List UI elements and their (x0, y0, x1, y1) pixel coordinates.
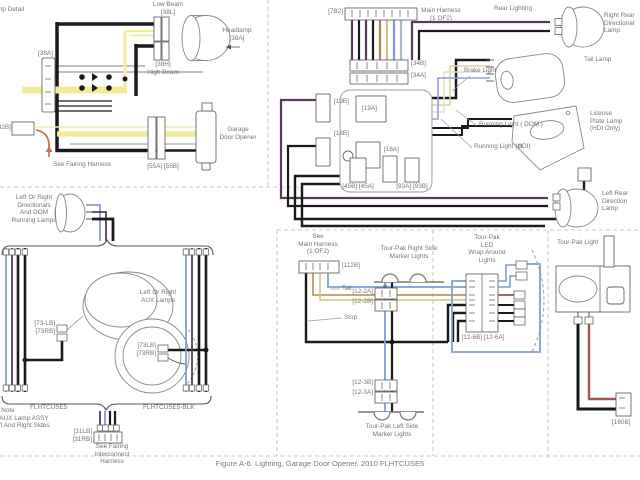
garage-door-opener-label: Garage Door Opener (220, 126, 257, 141)
connector-32b-label: [32B] (0, 124, 11, 132)
tourpak-light-title: Tour-Pak Light (557, 239, 598, 247)
tourpak-light-wires (578, 324, 631, 416)
see-fairing-interconnect-label: See Fairing Interconnect Harness (94, 443, 129, 466)
rear-panel-leader-lines (441, 76, 477, 148)
led-connector (466, 274, 498, 332)
headlamp-label: Headlamp [38A] (222, 27, 251, 42)
left-rear-directional-lamp-drawing (553, 189, 598, 227)
left-marker-lights-drawing (358, 412, 424, 420)
brake-light-label: Brake Light (464, 67, 496, 75)
main-harness-label: Main Harness (1 OF2) (421, 7, 460, 22)
wiring-diagram-page: Lamp Detail Low Beam [38L] Headlamp [38A… (0, 0, 640, 480)
connector-12-6-label: [12-6B] [12-6A] (462, 334, 505, 342)
main-harness-connector (299, 261, 339, 273)
connector-38a-label: [38A] (38, 50, 53, 58)
connector-12-3a-label: [12-3A] (352, 389, 373, 397)
brace-top (2, 240, 213, 255)
connector-18a-label: [18A] (384, 146, 399, 154)
see-main-harness-label: See Main Harness (1 OF2) (298, 233, 337, 256)
connector-12-2a-label: [12-2A] (352, 288, 373, 296)
headlamp-panel-title: Lamp Detail (0, 6, 24, 14)
connector-160b-label: [160B] (612, 419, 630, 427)
tail-lamp-label: Tail Lamp (584, 56, 611, 64)
see-fairing-harness-label: See Fairing Harness (53, 161, 111, 169)
connector-34a-label: [34A] (411, 72, 426, 80)
high-beam-label: [38H] High Beam (147, 61, 179, 76)
right-markers-label: Tour-Pak Right Side Marker Lights (381, 245, 438, 260)
right-rear-directional-label: Right Rear Directional Lamp (604, 12, 635, 35)
led-wrap-around-label: Tour-Pak LED Wrap Around Lights (468, 234, 505, 265)
directional-lamp-wires (86, 205, 113, 241)
connector-73-left-label: [73-LB] [73RB] (34, 320, 55, 335)
connector-19a-label: [19A] (362, 105, 377, 113)
tail-lamp-drawing (486, 51, 567, 104)
connector-18b-label: [18B] (334, 130, 349, 138)
rear-lighting-title: Rear Lighting (494, 5, 532, 13)
connector-19b-label: [19B] (334, 98, 349, 106)
running-light-hdi-label: Running Light (HDI) (474, 143, 530, 151)
connector-73-right-label: [73LB] [73RB] (136, 342, 156, 357)
left-rear-directional-label: Left Rear Direction Lamp (602, 190, 628, 213)
note-label: Note Directional/AUX Lamp ASSY On Both L… (0, 407, 50, 430)
connector-112b-label: [112B] (342, 262, 360, 270)
connector-12-3b-label: [12-3B] (352, 379, 373, 387)
connector-12-2b-label: [12-2B] (352, 298, 373, 306)
connector-7b2-label: [7B2] (328, 8, 343, 16)
tail-wire-label: Tail (342, 285, 352, 293)
aux-lamps-label: Left Or Right AUX Lamps (140, 289, 176, 304)
connector-93-label: [93A] [93B] (396, 183, 428, 191)
right-marker-lights-drawing (374, 274, 444, 282)
low-beam-label: Low Beam [38L] (153, 1, 183, 16)
rear-panel-bundle (352, 20, 401, 62)
connector-45-label: [45B] [45A] (342, 183, 374, 191)
directionals-label: Left Or Right Directionals And DOM Runni… (12, 194, 57, 225)
license-plate-lamp-label: License Plate Lamp (HDI Only) (590, 110, 622, 133)
right-rear-directional-lamp-drawing (555, 7, 604, 47)
model-flhtcuse5blk-label: FLHTCUSE5-BLK (143, 404, 195, 412)
figure-caption: Figure A-6. Lighting, Garage Door Opener… (216, 459, 425, 468)
directional-lamp-drawing (55, 194, 85, 232)
tourpak-light-drawing (556, 236, 630, 324)
license-plate-lamp-drawing (512, 106, 584, 170)
led-right-stubs (498, 250, 544, 352)
marker-connectors (375, 288, 397, 403)
running-light-dom-label: Running Light ( DOM ) (479, 121, 543, 129)
left-markers-label: Tour-Pak Left Side Marker Lights (366, 423, 419, 438)
connector-34b-label: [34B] (411, 60, 426, 68)
stop-wire-label: Stop (344, 314, 357, 322)
connector-55-label: [55A] [55B] (147, 163, 179, 171)
connector-31-label: [31LB] [31RB] (72, 428, 92, 443)
